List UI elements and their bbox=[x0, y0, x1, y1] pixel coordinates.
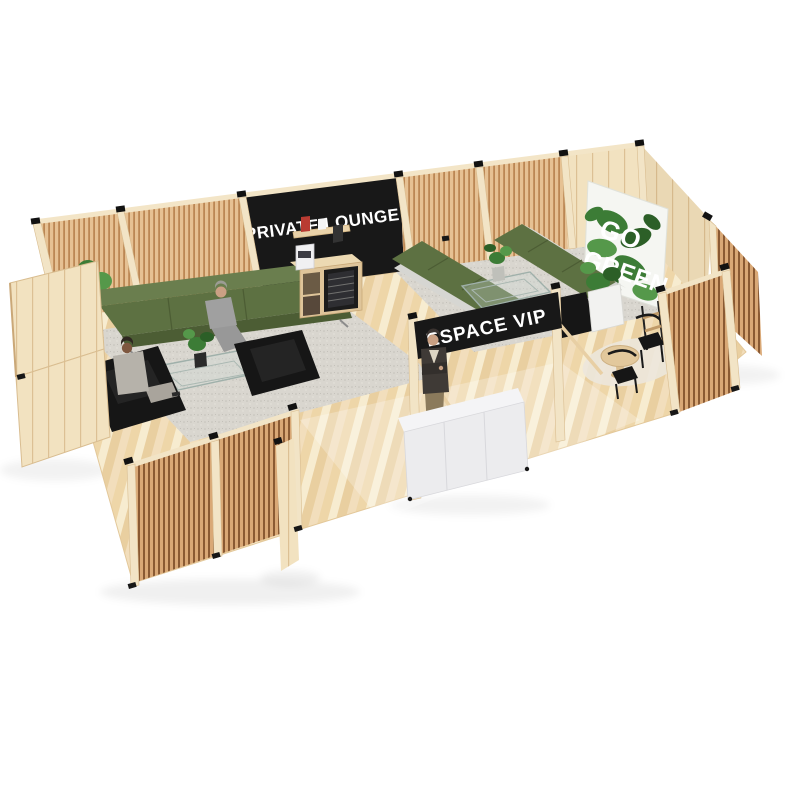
coffee-machine-front bbox=[298, 251, 311, 258]
bar-open-shelf-top bbox=[303, 272, 320, 295]
west-open-doors bbox=[10, 261, 110, 467]
shelf-cup bbox=[318, 218, 326, 230]
wine-fridge-glass bbox=[328, 270, 354, 308]
booth-render: PRIVATE LOUNGE GO GREEN bbox=[0, 0, 800, 800]
shelf-kettle bbox=[333, 224, 343, 243]
bar-open-shelf-bottom bbox=[303, 295, 320, 316]
front-right-wall bbox=[658, 270, 740, 414]
shelf-red-box bbox=[301, 216, 310, 232]
booth-scene: PRIVATE LOUNGE GO GREEN bbox=[0, 0, 800, 800]
